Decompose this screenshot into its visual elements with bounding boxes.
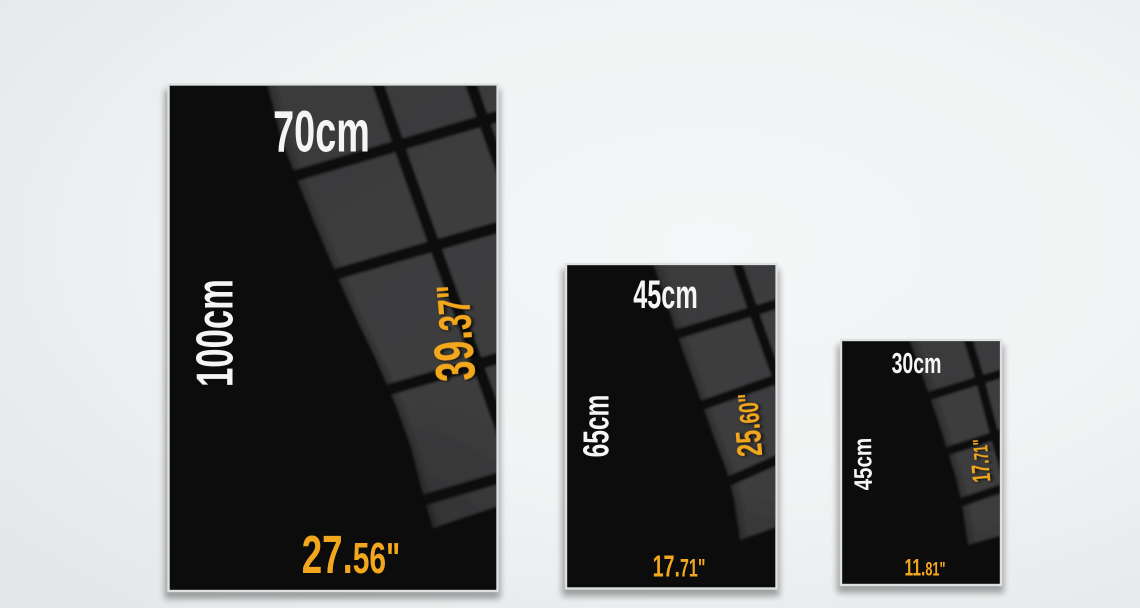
svg-text:45cm: 45cm <box>633 273 698 317</box>
svg-text:70cm: 70cm <box>273 101 370 165</box>
svg-text:65cm: 65cm <box>576 395 617 458</box>
svg-text:30cm: 30cm <box>892 348 942 380</box>
svg-text:45cm: 45cm <box>848 438 877 491</box>
svg-text:25.60": 25.60" <box>726 392 770 458</box>
svg-text:17.71": 17.71" <box>653 550 706 583</box>
svg-text:11.81": 11.81" <box>905 555 946 581</box>
svg-text:17.71": 17.71" <box>965 438 996 484</box>
svg-text:100cm: 100cm <box>187 279 245 387</box>
svg-text:27.56": 27.56" <box>302 524 400 585</box>
